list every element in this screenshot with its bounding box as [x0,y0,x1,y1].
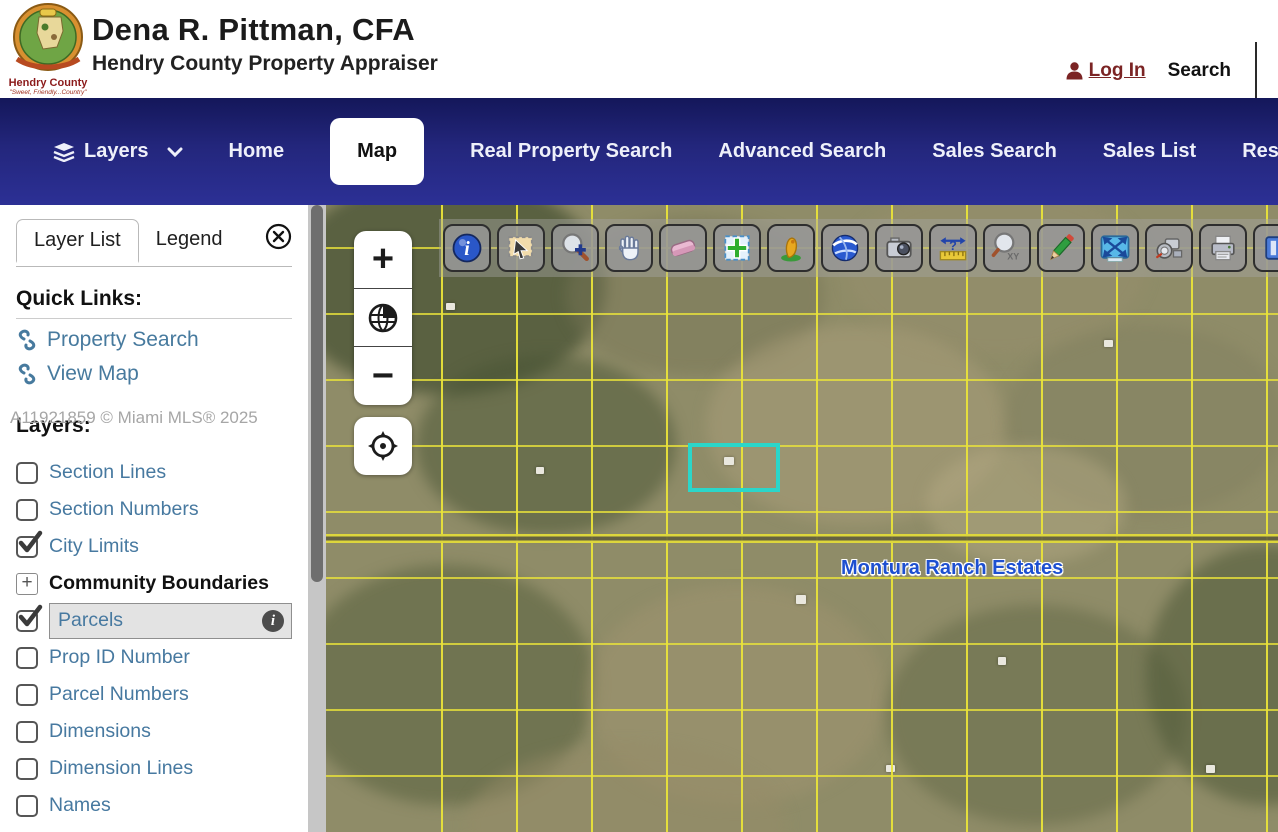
layer-row-community-boundaries: + Community Boundaries [16,565,292,602]
svg-text:XY: XY [1007,252,1019,262]
locate-button[interactable] [354,417,412,475]
county-seal-logo: Hendry County "Sweet, Friendly...Country… [5,3,91,97]
page-title: Dena R. Pittman, CFA [92,12,415,48]
nav-item-home[interactable]: Home [229,140,285,163]
quick-links-heading: Quick Links: [16,287,292,311]
selected-parcel-highlight[interactable] [688,443,780,492]
printer-icon [1205,230,1241,266]
logo-tagline: "Sweet, Friendly...Country" [5,89,91,96]
nav-layers-label: Layers [84,140,149,163]
checkbox-section-lines[interactable] [16,462,38,484]
layer-label[interactable]: Community Boundaries [49,572,269,595]
layer-label[interactable]: City Limits [49,535,139,558]
layer-label[interactable]: Section Lines [49,461,166,484]
road-line [326,534,1278,543]
layer-label[interactable]: Dimension Lines [49,757,193,780]
page-subtitle: Hendry County Property Appraiser [92,52,438,76]
checkbox-parcels[interactable] [16,610,38,632]
layer-label[interactable]: Dimensions [49,720,151,743]
layer-row-section-lines: Section Lines [16,454,292,491]
camera-icon [881,230,917,266]
layer-label[interactable]: Parcels [58,609,123,632]
measure-ruler-icon: ? [935,230,971,266]
sidebar-scrollbar-track[interactable] [308,205,326,832]
tab-layer-list[interactable]: Layer List [16,219,139,263]
snapshot-button[interactable] [875,224,923,272]
layer-row-parcels: Parcels i [16,602,292,639]
select-features-button[interactable] [497,224,545,272]
partial-tool-button[interactable] [1253,224,1278,272]
login-label: Log In [1089,60,1146,82]
info-icon[interactable]: i [262,610,284,632]
layer-label[interactable]: Names [49,794,111,817]
nav-item-map[interactable]: Map [330,118,424,185]
expand-plus-icon[interactable]: + [16,573,38,595]
panel-tabs: Layer List Legend [16,219,292,267]
sidebar-scrollbar-thumb[interactable] [311,205,323,582]
partial-tool-icon [1259,230,1278,266]
checkbox-parcel-numbers[interactable] [16,684,38,706]
close-icon [265,223,292,250]
tab-legend[interactable]: Legend [139,219,240,260]
layer-row-names: Names [16,787,292,824]
quick-link-label: View Map [47,362,139,386]
nav-item-results[interactable]: Results [1242,140,1278,163]
draw-pencil-button[interactable] [1037,224,1085,272]
nav-item-sales-search[interactable]: Sales Search [932,140,1057,163]
link-chain-icon [16,363,38,385]
eraser-icon [665,230,701,266]
magnifier-xy-icon: XY [989,230,1025,266]
layer-row-prop-id-number: Prop ID Number [16,639,292,676]
nav-item-sales-list[interactable]: Sales List [1103,140,1196,163]
print-button[interactable] [1199,224,1247,272]
measure-button[interactable]: ? [929,224,977,272]
zoom-out-button[interactable]: − [354,347,412,405]
checkbox-city-limits[interactable] [16,536,38,558]
eraser-button[interactable] [659,224,707,272]
quick-link-view-map[interactable]: View Map [16,362,292,386]
layer-label[interactable]: Prop ID Number [49,646,190,669]
layer-label[interactable]: Section Numbers [49,498,199,521]
parcels-selected-box[interactable]: Parcels i [49,603,292,639]
quick-link-property-search[interactable]: Property Search [16,328,292,352]
nav-item-real-property-search[interactable]: Real Property Search [470,140,672,163]
search-button[interactable]: Search [1168,60,1231,82]
main-navbar: Layers Home Map Real Property Search Adv… [0,98,1278,205]
quick-link-label: Property Search [47,328,199,352]
zoom-in-button[interactable]: + [354,231,412,289]
parcel-grid-overlay [326,205,1278,832]
checkbox-names[interactable] [16,795,38,817]
pan-button[interactable] [605,224,653,272]
page-header: Hendry County "Sweet, Friendly...Country… [0,0,1278,98]
map-canvas[interactable]: Montura Ranch Estates i [326,205,1278,832]
link-chain-icon [16,329,38,351]
checkbox-section-numbers[interactable] [16,499,38,521]
checkbox-dimensions[interactable] [16,721,38,743]
zoom-control-stack: + − [354,231,412,405]
panel-close-button[interactable] [265,223,292,255]
flag-marker-button[interactable] [767,224,815,272]
layer-panel: Layer List Legend Quick Links: Property … [0,205,308,832]
full-extent-button[interactable] [1091,224,1139,272]
layer-row-dimension-lines: Dimension Lines [16,750,292,787]
place-label: Montura Ranch Estates [841,557,1063,580]
zoom-to-selection-button[interactable] [551,224,599,272]
add-graphic-icon [719,230,755,266]
layer-row-section-numbers: Section Numbers [16,491,292,528]
identify-info-button[interactable]: i [443,224,491,272]
svg-text:i: i [464,238,470,260]
county-seal-icon [9,3,87,75]
select-cursor-icon [503,230,539,266]
layer-row-parcel-numbers: Parcel Numbers [16,676,292,713]
user-icon [1066,62,1083,80]
logo-county-name: Hendry County [5,78,91,89]
layer-row-city-limits: City Limits [16,528,292,565]
mls-watermark: A11921859 © Miami MLS® 2025 [10,408,258,428]
chevron-down-icon [167,147,183,157]
add-selection-button[interactable] [713,224,761,272]
checkbox-prop-id-number[interactable] [16,647,38,669]
full-extent-icon [1097,230,1133,266]
field-tools-icon [1151,230,1187,266]
svg-text:?: ? [949,239,957,253]
map-toolbar: i [439,219,1278,277]
search-box-partial[interactable] [1255,42,1260,100]
info-icon: i [449,230,485,266]
globe-swirl-icon [827,230,863,266]
nav-item-advanced-search[interactable]: Advanced Search [718,140,886,163]
flag-marker-icon [773,230,809,266]
layers-icon [52,142,76,162]
magnifier-plus-icon [557,230,593,266]
pan-hand-icon [611,230,647,266]
nav-layers-dropdown[interactable]: Layers [52,140,183,163]
login-link[interactable]: Log In [1066,60,1146,82]
checkbox-dimension-lines[interactable] [16,758,38,780]
field-review-button[interactable] [1145,224,1193,272]
globe-icon [367,302,399,334]
crosshair-locate-icon [366,429,400,463]
quick-links-divider [16,318,292,319]
pencil-icon [1043,230,1079,266]
google-earth-button[interactable] [821,224,869,272]
zoom-coordinates-button[interactable]: XY [983,224,1031,272]
layer-row-dimensions: Dimensions [16,713,292,750]
home-extent-button[interactable] [354,289,412,347]
layer-label[interactable]: Parcel Numbers [49,683,189,706]
